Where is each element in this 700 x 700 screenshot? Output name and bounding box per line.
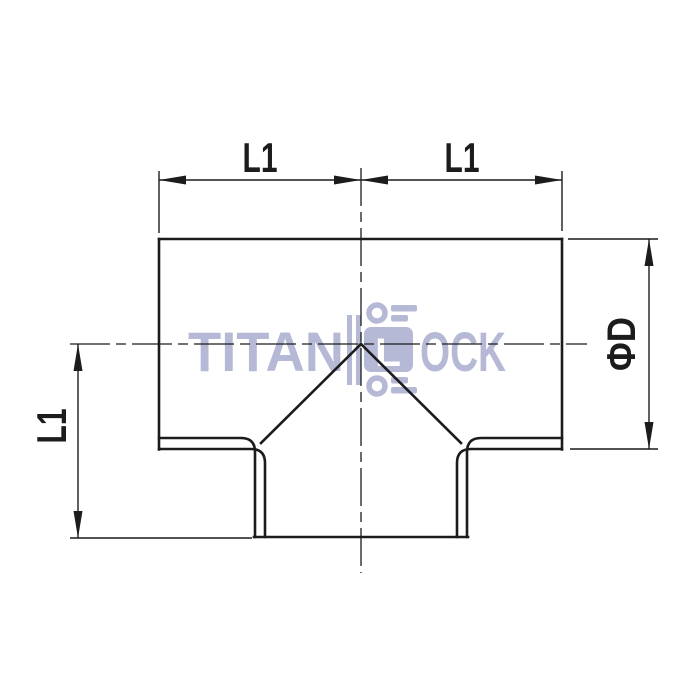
- padlock-icon: L: [347, 305, 417, 394]
- left-wall-outer-bend: [159, 449, 265, 537]
- arrow-right-icon: [535, 176, 562, 185]
- left-wall-inner-bend: [159, 438, 255, 537]
- watermark-text-ock: OCK: [420, 320, 506, 383]
- dim-label-l1-top-left: L1: [243, 134, 278, 181]
- arrow-up-icon: [645, 239, 654, 266]
- arrow-up-icon: [74, 344, 83, 371]
- dim-label-l1-top-right: L1: [445, 134, 480, 181]
- arrow-left-icon: [159, 176, 186, 185]
- drawing-canvas: TITAN L OCK: [0, 0, 700, 700]
- right-wall-outer-bend: [457, 449, 562, 537]
- tee-fitting-drawing: TITAN L OCK: [0, 0, 700, 700]
- dim-label-phi-d: ΦD: [600, 317, 644, 371]
- arrow-left-icon: [361, 176, 388, 185]
- arrow-right-icon: [334, 176, 361, 185]
- arrow-down-icon: [74, 511, 83, 538]
- watermark-lock-letter: L: [375, 331, 401, 375]
- titanlock-watermark: TITAN L OCK: [188, 305, 506, 394]
- dim-label-l1-left: L1: [28, 409, 75, 444]
- right-wall-inner-bend: [467, 438, 562, 537]
- watermark-text-titan: TITAN: [188, 320, 344, 383]
- arrow-down-icon: [645, 422, 654, 449]
